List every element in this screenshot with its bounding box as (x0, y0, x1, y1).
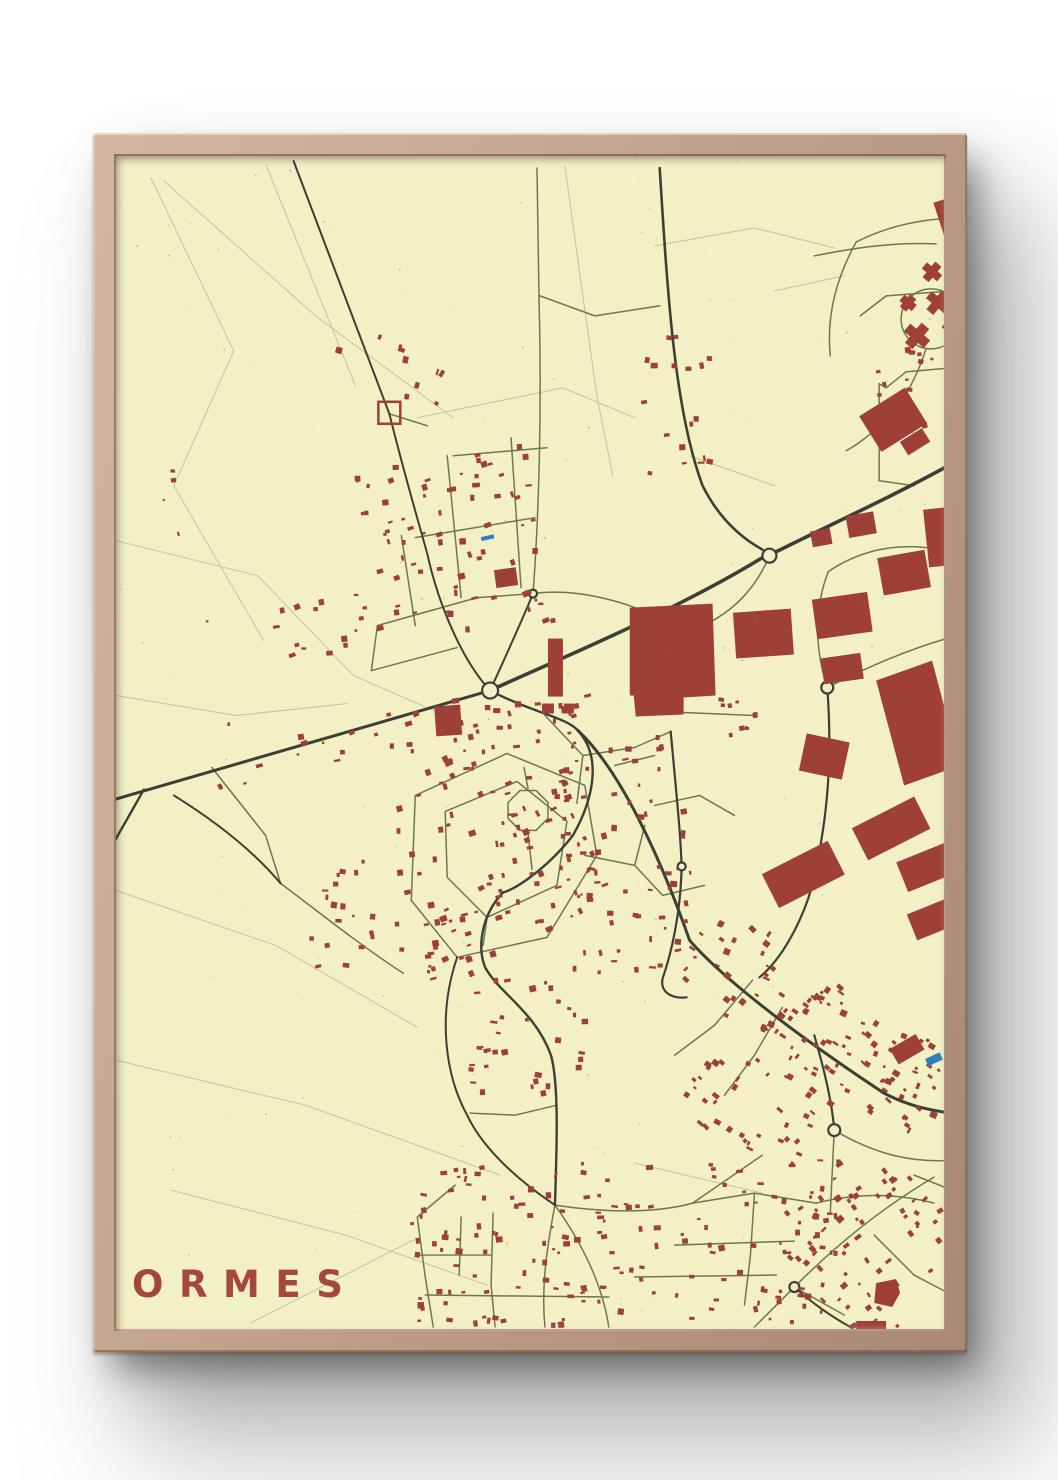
picture-frame: ORMES (93, 133, 967, 1352)
map-poster: ORMES (116, 156, 944, 1329)
city-map-graphic (116, 156, 944, 1329)
wall-background: ORMES (0, 0, 1058, 1480)
poster-title: ORMES (132, 1266, 358, 1303)
